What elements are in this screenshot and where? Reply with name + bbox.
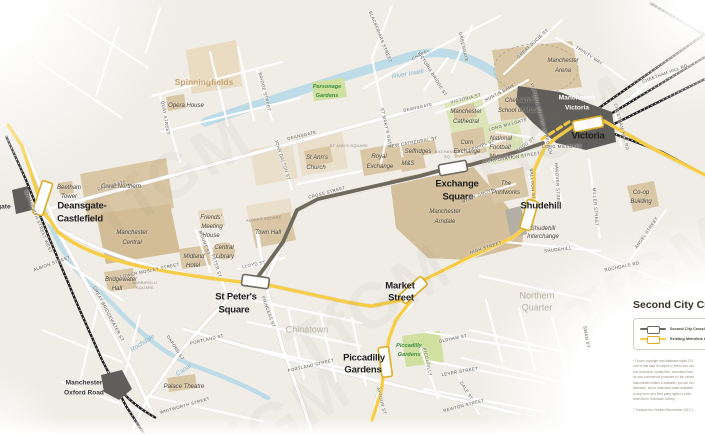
coop-building-shape (627, 181, 659, 212)
metrolink-line-sample (640, 335, 666, 343)
arena-building (492, 41, 582, 97)
opera-house-building (166, 94, 186, 111)
tram-stop-market-street (398, 276, 428, 304)
midland-hotel-building (179, 245, 211, 269)
legend-item-scc: Second City Crossing tram stops (640, 324, 705, 334)
map-canvas: N (0, 0, 705, 435)
legend-title: Second City Crossing (633, 299, 705, 311)
scc-line-sample (640, 325, 666, 333)
legend-item-metrolink: Existing Metrolink & stops (640, 334, 705, 344)
legend: Second City Crossing Second City Crossin… (633, 299, 705, 413)
legend-label-scc: Second City Crossing tram stops (670, 327, 705, 331)
friends-meeting-house-building (198, 208, 225, 229)
legend-box: Second City Crossing tram stops Existing… (633, 318, 705, 350)
north-arrow: N (596, 320, 629, 351)
bridgewater-hall-building (104, 268, 137, 292)
manchester-central-building (96, 204, 180, 264)
oxford-road-station-shape (101, 370, 132, 400)
piccadilly-gardens-area (402, 331, 444, 367)
copyright-line: reserved to Ordnance Survey (633, 397, 705, 402)
copyright-line: * Transport for Greater Manchester 2013 … (633, 408, 705, 413)
central-library-building (213, 243, 235, 260)
ms-building (399, 154, 426, 172)
palace-theatre-building (167, 374, 197, 392)
tram-stop-piccadilly-gardens (378, 346, 393, 377)
svg-text:N: N (608, 339, 612, 345)
copyright-notes: * Crown copyright and database rights 20… (633, 359, 705, 413)
portland-street (183, 329, 520, 414)
legend-label-metrolink: Existing Metrolink & stops (670, 337, 705, 341)
parsonage-gardens-area (312, 78, 347, 101)
map-page: N TfGMTfGMTfGMTfGMTfGM Deansgate-Castlef… (0, 0, 705, 435)
beetham-tower-building (58, 181, 74, 195)
